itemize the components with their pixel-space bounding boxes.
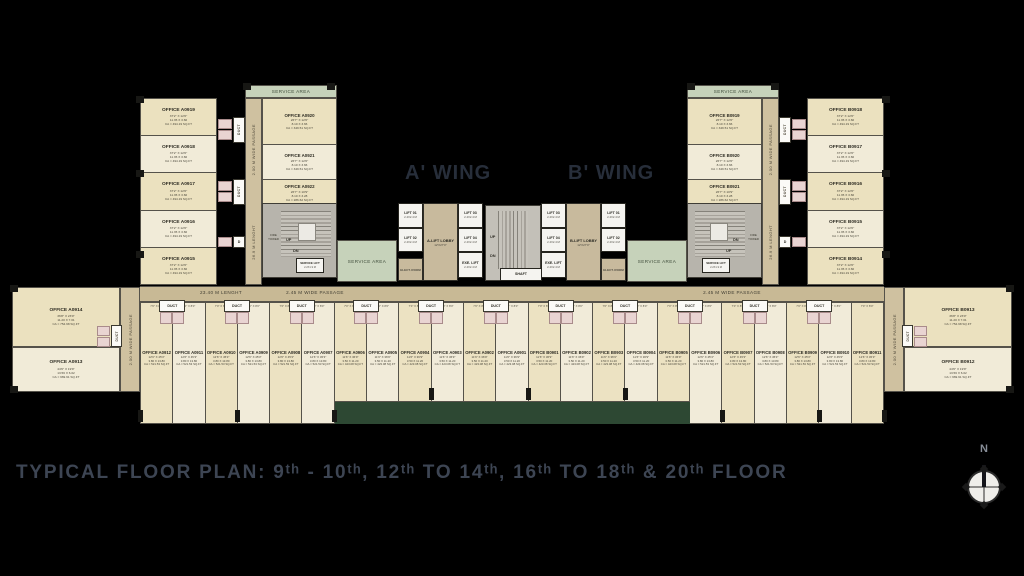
office-unit: OFFICE A0915 37'2" X 12'0" 11.35 X 3.66 … [141, 247, 216, 284]
left-fire-tower-block: FIRE TOWER UP DN SERVICE LIFT 2.2X1.9 M [262, 203, 337, 278]
right-fire-tower-block: FIRE TOWER DN UP SERVICE LIFT 2.2X1.9 M [687, 203, 762, 278]
toilet-box [496, 312, 508, 324]
office-unit: OFFICE B0914 37'2" X 12'0" 11.35 X 3.66 … [808, 247, 883, 284]
toilet-box [354, 312, 366, 324]
wall-tick [1006, 285, 1014, 292]
office-unit: OFFICE A0920 26'7" X 12'0" 8.10 X 3.66 C… [263, 99, 336, 144]
right-wing-outer-offices: OFFICE B0918 37'2" X 12'0" 11.35 X 3.66 … [807, 98, 884, 285]
elect-room-b: ELECT. ROOM [601, 258, 626, 281]
duct-box: DUCT [779, 179, 791, 205]
toilet-box [218, 119, 232, 129]
wall-tick [771, 83, 779, 90]
office-unit: OFFICE A0919 37'2" X 12'0" 11.35 X 3.66 … [141, 99, 216, 135]
office-unit: OFFICE A0922 26'7" X 10'9" 8.10 X 3.28 C… [263, 179, 336, 206]
lift-03-a: LIFT 032.4X2.4 M [458, 203, 483, 228]
dn-label: DN [490, 253, 496, 258]
toilet-box [237, 312, 249, 324]
duct-box: DUCT [418, 300, 444, 312]
duct-box: DUCT [111, 325, 122, 347]
exe-lift-b: EXE. LIFT2.4X2.4 M [541, 252, 566, 278]
wall-tick [1006, 386, 1014, 393]
floor-plan-canvas: SERVICE AREA OFFICE A0919 37'2" X 12'0" … [0, 0, 1024, 576]
lift-02-a: LIFT 022.4X2.4 M [398, 228, 423, 252]
wall-tick [817, 410, 822, 422]
wall-tick [332, 410, 337, 422]
lift-lobby-b: B-LIFT LOBBY12'X27'0" [566, 203, 601, 281]
compass-icon [956, 455, 1012, 511]
office-b0912: OFFICE B0912 44'6" X 19'9" 13.56 X 6.02 … [904, 347, 1012, 392]
right-wing-passage: 2.00 M WIDE PASSAGE 26.9 M LENGHT [762, 98, 779, 285]
toilet-box [218, 181, 232, 191]
up-label: UP [286, 237, 291, 242]
stair-hatch [498, 211, 528, 269]
duct-box: DUCT [233, 179, 245, 205]
fire-tower-label: FIRE TOWER [266, 234, 281, 241]
wall-tick [327, 83, 335, 90]
d-box: D [233, 236, 245, 248]
service-area-left-side: SERVICE AREA [337, 240, 397, 282]
elect-room-a: ELECT. ROOM [398, 258, 423, 281]
wall-tick [882, 96, 890, 103]
toilet-box [914, 326, 927, 336]
duct-box: DUCT [224, 300, 250, 312]
toilet-box [678, 312, 690, 324]
length-label: 26.9 M LENGHT [251, 225, 256, 260]
toilet-box [218, 192, 232, 202]
duct-box: DUCT [806, 300, 832, 312]
passage-label: 2.45 M WIDE PASSAGE [677, 290, 787, 295]
office-unit: OFFICE B0918 37'2" X 12'0" 11.35 X 3.66 … [808, 99, 883, 135]
toilet-box [792, 181, 806, 191]
duct-box: DUCT [677, 300, 703, 312]
dn-label: DN [293, 248, 299, 253]
toilet-box [431, 312, 443, 324]
toilet-box [561, 312, 573, 324]
service-lift: SERVICE LIFT 2.2X1.9 M [702, 258, 730, 273]
left-wing-inner-offices: OFFICE A0920 26'7" X 12'0" 8.10 X 3.66 C… [262, 98, 337, 203]
toilet-box [218, 237, 232, 247]
wall-tick [136, 96, 144, 103]
wall-tick [623, 388, 628, 400]
wall-tick [136, 251, 144, 258]
wall-tick [10, 285, 18, 292]
toilet-box [290, 312, 302, 324]
service-area-right-side: SERVICE AREA [627, 240, 687, 282]
toilet-box [225, 312, 237, 324]
lift-04-a: LIFT 042.4X2.4 M [458, 228, 483, 252]
service-lift: SERVICE LIFT 2.2X1.9 M [296, 258, 324, 273]
service-area-left-top: SERVICE AREA [245, 85, 337, 98]
left-wing-passage: 2.00 M WIDE PASSAGE 26.9 M LENGHT [245, 98, 262, 285]
toilet-box [549, 312, 561, 324]
toilet-box [366, 312, 378, 324]
length-label: 23.40 M LENGHT [178, 290, 264, 295]
north-label: N [952, 444, 1016, 455]
passage-label: 2.00 M WIDE PASSAGE [768, 124, 773, 175]
service-area-right-top: SERVICE AREA [687, 85, 779, 98]
wall-tick [429, 388, 434, 400]
toilet-box [914, 337, 927, 347]
wall-tick [10, 386, 18, 393]
toilet-box [160, 312, 172, 324]
lift-01-a: LIFT 012.4X2.4 M [398, 203, 423, 228]
toilet-box [97, 337, 110, 347]
up-label: UP [490, 234, 495, 239]
lift-lobby-a: A-LIFT LOBBY12'X27'0" [423, 203, 458, 281]
stair-landing [298, 223, 316, 241]
duct-box: DUCT [289, 300, 315, 312]
d-box: D [779, 236, 791, 248]
left-end-passage: 2.00 M WIDE PASSAGE [120, 287, 140, 392]
strip-corridor: 23.40 M LENGHT 2.45 M WIDE PASSAGE 2.45 … [140, 286, 884, 302]
wall-tick [687, 83, 695, 90]
duct-box: DUCT [159, 300, 185, 312]
lift-04-b: LIFT 042.4X2.4 M [541, 228, 566, 252]
wall-tick [526, 388, 531, 400]
toilet-box [625, 312, 637, 324]
length-label: 26.9 M LENGHT [768, 225, 773, 260]
duct-box: DUCT [233, 117, 245, 143]
duct-box: DUCT [353, 300, 379, 312]
wall-tick [882, 251, 890, 258]
dn-label: DN [733, 237, 739, 242]
office-unit: OFFICE B0920 26'7" X 12'0" 8.10 X 3.66 C… [688, 144, 761, 179]
office-unit: OFFICE B0919 26'7" X 12'0" 8.10 X 3.66 C… [688, 99, 761, 144]
passage-label: 2.00 M WIDE PASSAGE [892, 314, 897, 365]
toilet-box [218, 130, 232, 140]
lift-02-b: LIFT 022.4X2.4 M [601, 228, 626, 252]
wall-tick [138, 410, 143, 422]
duct-box: DUCT [742, 300, 768, 312]
duct-box: DUCT [483, 300, 509, 312]
lift-01-b: LIFT 012.4X2.4 M [601, 203, 626, 228]
compass: N [952, 444, 1016, 516]
wall-tick [720, 410, 725, 422]
right-end-passage: 2.00 M WIDE PASSAGE [884, 287, 904, 392]
passage-label: 2.45 M WIDE PASSAGE [260, 290, 370, 295]
passage-label: 2.00 M WIDE PASSAGE [251, 124, 256, 175]
toilet-box [755, 312, 767, 324]
toilet-box [690, 312, 702, 324]
wall-tick [882, 170, 890, 177]
shaft: SHAFT [500, 268, 542, 281]
right-wing-inner-offices: OFFICE B0919 26'7" X 12'0" 8.10 X 3.66 C… [687, 98, 762, 203]
exe-lift-a: EXE. LIFT2.4X2.4 M [458, 252, 483, 278]
duct-box: DUCT [548, 300, 574, 312]
up-label: UP [726, 248, 731, 253]
office-unit: OFFICE A0918 37'2" X 12'0" 11.35 X 3.66 … [141, 135, 216, 172]
lift-03-b: LIFT 032.4X2.4 M [541, 203, 566, 228]
duct-box: DUCT [612, 300, 638, 312]
wing-a-label: A' WING [405, 162, 491, 185]
left-wing-outer-offices: OFFICE A0919 37'2" X 12'0" 11.35 X 3.66 … [140, 98, 217, 285]
office-unit: OFFICE A0917 37'2" X 12'0" 11.35 X 3.66 … [141, 172, 216, 209]
wall-tick [243, 83, 251, 90]
wall-tick [235, 410, 240, 422]
toilet-box [792, 237, 806, 247]
office-unit: OFFICE B0921 26'7" X 10'9" 8.10 X 3.28 C… [688, 179, 761, 206]
office-unit: OFFICE B0916 37'2" X 12'0" 11.35 X 3.66 … [808, 172, 883, 209]
office-unit: 7'0" X 8'0" OFFICE B0911 12'6" X 45'3" 3… [852, 302, 884, 424]
toilet-box [172, 312, 184, 324]
fire-tower-label: FIRE TOWER [746, 234, 761, 241]
toilet-box [302, 312, 314, 324]
duct-box: DUCT [902, 325, 913, 347]
duct-box: DUCT [779, 117, 791, 143]
toilet-box [743, 312, 755, 324]
center-stair-block: UP DN SHAFT [485, 205, 541, 281]
wing-b-label: B' WING [568, 162, 654, 185]
toilet-box [792, 119, 806, 129]
toilet-box [613, 312, 625, 324]
office-unit: OFFICE A0921 26'7" X 12'0" 8.10 X 3.66 C… [263, 144, 336, 179]
wall-tick [136, 170, 144, 177]
office-a0913: OFFICE A0913 44'6" X 19'9" 13.56 X 6.02 … [12, 347, 120, 392]
stair-landing [710, 223, 728, 241]
toilet-box [792, 192, 806, 202]
toilet-box [819, 312, 831, 324]
wall-tick [882, 410, 887, 422]
office-unit: OFFICE B0915 37'2" X 12'0" 11.35 X 3.66 … [808, 210, 883, 247]
page-title: TYPICAL FLOOR PLAN: 9ᵗʰ - 10ᵗʰ, 12ᵗʰ TO … [16, 462, 787, 484]
office-unit: OFFICE B0917 37'2" X 12'0" 11.35 X 3.66 … [808, 135, 883, 172]
toilet-box [807, 312, 819, 324]
passage-label: 2.00 M WIDE PASSAGE [128, 314, 133, 365]
toilet-box [419, 312, 431, 324]
toilet-box [484, 312, 496, 324]
toilet-box [792, 130, 806, 140]
office-unit: OFFICE A0916 37'2" X 12'0" 11.35 X 3.66 … [141, 210, 216, 247]
toilet-box [97, 326, 110, 336]
